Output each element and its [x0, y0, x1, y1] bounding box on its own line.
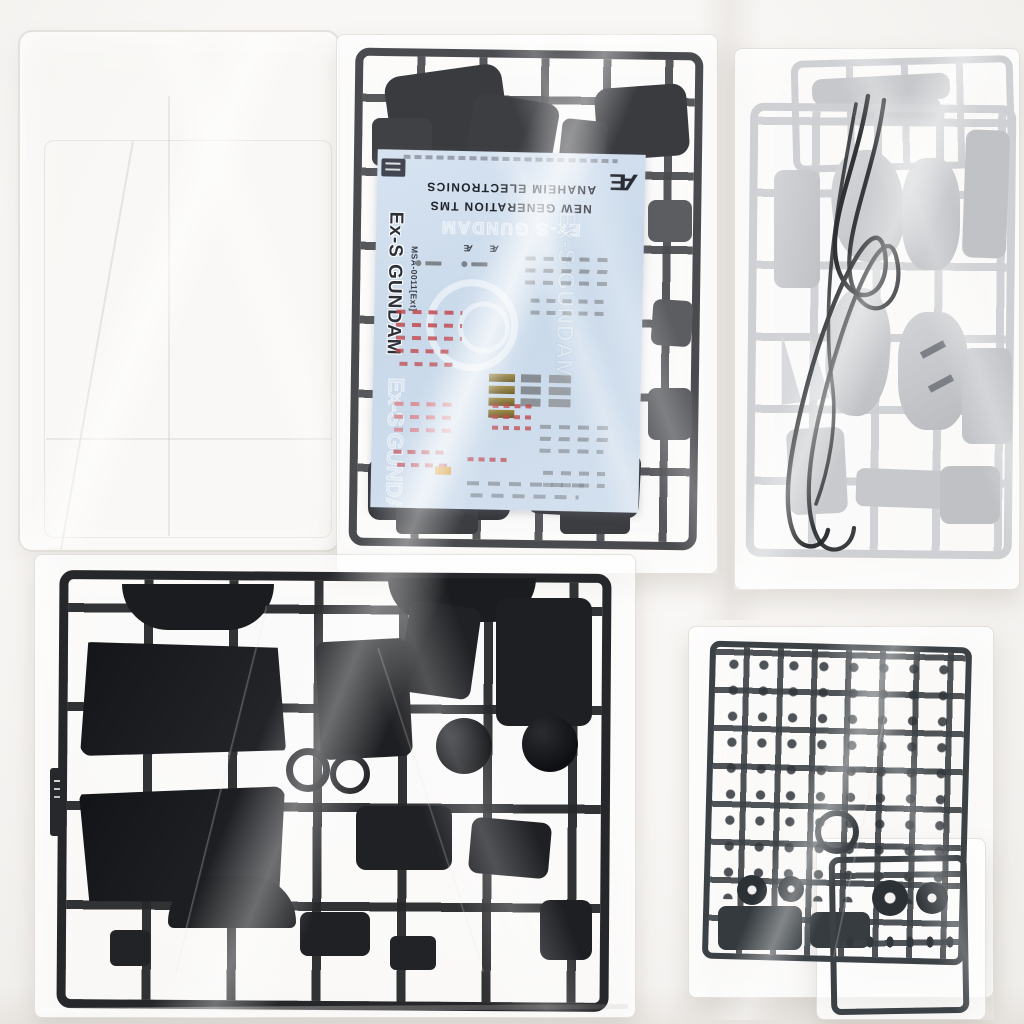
clear-tray-inner-edge — [44, 140, 332, 538]
decal-title-vertical: Ex-S GUNDAM — [381, 211, 406, 371]
decal-gray-mark — [521, 386, 541, 394]
runner-id-tag — [50, 768, 64, 836]
molded-part-black — [468, 817, 553, 880]
decal-marks-red-row — [492, 415, 532, 420]
decal-marks-red-row — [396, 349, 456, 354]
decal-marks-red-row — [396, 336, 462, 341]
molded-part — [648, 200, 692, 242]
decal-marks-red-row — [467, 457, 507, 462]
decal-ghost-title-top: Ex-S GUNDAM — [376, 215, 644, 241]
decal-marks-red-row — [492, 426, 532, 431]
decal-emblem-mark — [461, 261, 467, 267]
molded-part-slate — [718, 906, 802, 950]
joint-oval-parts-row — [840, 930, 960, 954]
decal-gray-mark — [549, 375, 571, 383]
decal-marks-red-row — [396, 310, 462, 315]
decal-gold-mark — [489, 386, 515, 395]
molded-part-black — [540, 900, 592, 960]
decal-marks-gray-row — [467, 481, 585, 487]
molded-ring-part — [815, 810, 859, 854]
decal-emblem-mark — [471, 262, 487, 266]
molded-part-black — [300, 912, 370, 956]
decal-ghost-title-left: Ex-S GUNDAM — [380, 377, 409, 506]
decal-gold-mark — [489, 374, 515, 383]
decal-marks-gray-row — [525, 280, 609, 286]
wire-antenna-leads — [736, 52, 1024, 572]
molded-donut-part — [872, 880, 908, 916]
runner-id-tag-text-bar — [54, 796, 60, 798]
decal-marks-gray-row — [471, 493, 579, 499]
molded-ring-part — [286, 748, 330, 792]
photo-canvas: Æ NEW GENERATION TMS ANAHEIM ELECTRONICS… — [0, 0, 1024, 1024]
molded-part-black — [122, 584, 274, 630]
decal-marks-gray-row — [525, 256, 609, 262]
decal-marks-red-row — [396, 323, 462, 328]
molded-dome-part — [436, 718, 492, 774]
runner-id-tag-text-bar — [54, 788, 60, 790]
molded-dome-part — [522, 716, 578, 772]
molded-ring-part — [330, 754, 370, 794]
decal-emblem-mark — [425, 261, 441, 265]
molded-donut-part — [778, 876, 804, 902]
decal-emblem-mark — [415, 260, 421, 266]
decal-marks-silver-row — [540, 425, 610, 430]
molded-part-black — [110, 930, 150, 966]
molded-part-black — [398, 599, 482, 700]
molded-part — [648, 388, 692, 440]
decal-orange-mark — [435, 467, 451, 475]
molded-fuselage-panel — [80, 642, 286, 756]
decal-marks-silver-row — [543, 471, 605, 476]
decal-marks-silver-row — [540, 437, 610, 442]
decal-maker-logo-box — [381, 158, 405, 176]
logo-box-text-bar — [385, 168, 400, 170]
molded-part-black — [496, 598, 592, 726]
decal-mini-ae-logo: Æ — [464, 243, 473, 253]
decal-sheet: Æ NEW GENERATION TMS ANAHEIM ELECTRONICS… — [370, 149, 645, 513]
molded-part — [650, 299, 693, 348]
logo-box-text-bar — [385, 162, 400, 164]
molded-part-black — [356, 806, 452, 870]
decal-marks-gray-row — [531, 298, 605, 304]
decal-gray-mark — [521, 374, 541, 382]
decal-marks-silver-row — [539, 449, 603, 454]
decal-mini-ae-logo: Æ — [490, 244, 499, 254]
decal-marks-red-row — [492, 404, 532, 409]
decal-gray-mark — [548, 399, 570, 407]
runner-id-tag-text-bar — [54, 780, 60, 782]
decal-marks-gray-row — [525, 268, 609, 274]
molded-donut-part — [737, 875, 767, 905]
clear-tray-compartment-line — [46, 438, 332, 440]
clear-tray-compartment-line — [168, 96, 170, 536]
molded-part — [594, 83, 691, 161]
decal-marks-gray-row — [530, 310, 604, 316]
molded-donut-part — [916, 882, 948, 914]
decal-marks-red-row — [399, 362, 455, 367]
decal-fine-print-row — [404, 155, 618, 163]
decal-brand-block: NEW GENERATION TMS ANAHEIM ELECTRONICS — [376, 175, 645, 219]
molded-part-black — [390, 936, 436, 970]
molded-part-black — [315, 638, 413, 761]
decal-gray-mark — [549, 387, 571, 395]
